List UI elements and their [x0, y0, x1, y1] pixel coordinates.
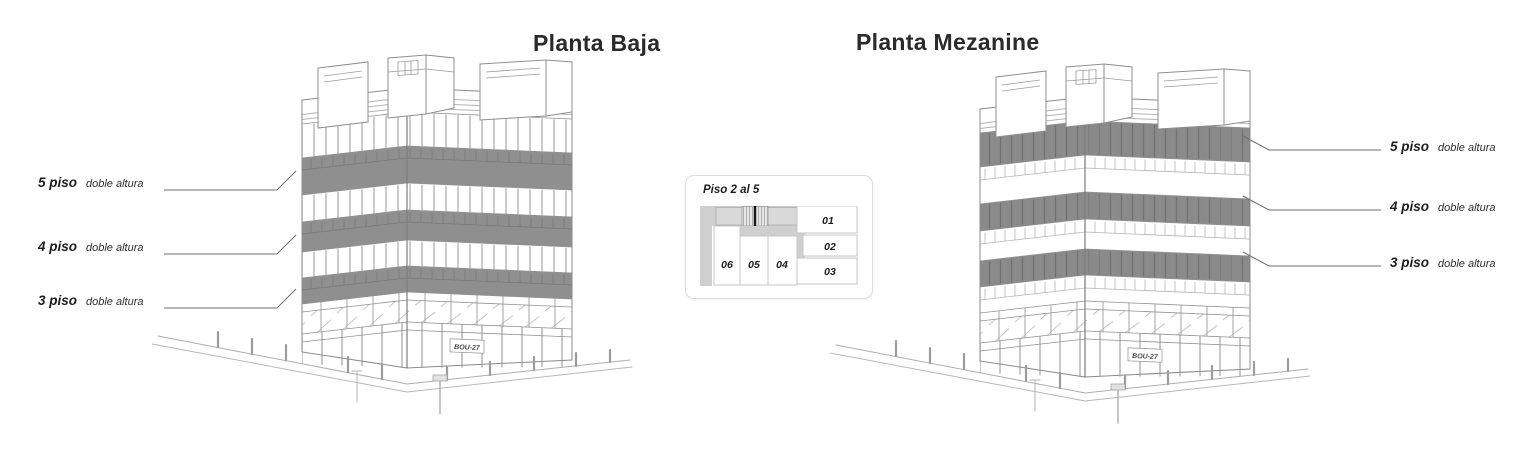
leader-line: [163, 283, 303, 311]
floor-note: doble altura: [1438, 142, 1496, 154]
floor-plan-drawing: 01 02 03 06 05 04: [700, 206, 860, 290]
floor-label-left-3: 3 piso doble altura: [38, 293, 144, 308]
floor-note: doble altura: [1438, 258, 1496, 270]
floor-label-left-5: 5 piso doble altura: [38, 175, 144, 190]
plan-corridor: [700, 206, 712, 286]
leader-line: [1242, 251, 1382, 271]
plan-unit-label-04: 04: [776, 259, 788, 271]
plan-unit-label-02: 02: [824, 241, 836, 253]
plan-unit-label-03: 03: [824, 266, 836, 278]
floor-number: 5 piso: [1390, 139, 1438, 154]
floor-label-right-4: 4 piso doble altura: [1390, 199, 1496, 214]
plan-unit-label-06: 06: [721, 259, 733, 271]
floor-number: 4 piso: [1390, 199, 1438, 214]
leader-line: [163, 229, 303, 257]
leader-line: [1242, 135, 1382, 155]
floor-number: 3 piso: [38, 293, 86, 308]
floor-number: 5 piso: [38, 175, 86, 190]
floor-note: doble altura: [86, 296, 144, 308]
floor-number: 4 piso: [38, 239, 86, 254]
floor-note: doble altura: [1438, 202, 1496, 214]
canvas: BOU-27: [0, 0, 1536, 450]
plan-unit-label-01: 01: [822, 215, 834, 227]
plan-stairs-rail: [754, 206, 756, 226]
floor-plan-card: Piso 2 al 5 01 02 03 06 05: [685, 175, 873, 299]
floor-label-right-3: 3 piso doble altura: [1390, 255, 1496, 270]
floor-number: 3 piso: [1390, 255, 1438, 270]
floor-note: doble altura: [86, 178, 144, 190]
leader-line: [163, 165, 303, 193]
building-drawing-planta-mezanine: [830, 9, 1330, 439]
floor-label-left-4: 4 piso doble altura: [38, 239, 144, 254]
floor-note: doble altura: [86, 242, 144, 254]
floor-label-right-5: 5 piso doble altura: [1390, 139, 1496, 154]
building-drawing-planta-baja: [152, 0, 652, 430]
plan-unit-label-05: 05: [748, 259, 760, 271]
floor-plan-title: Piso 2 al 5: [703, 184, 759, 196]
leader-line: [1242, 195, 1382, 215]
plan-unit-06: [714, 226, 740, 285]
